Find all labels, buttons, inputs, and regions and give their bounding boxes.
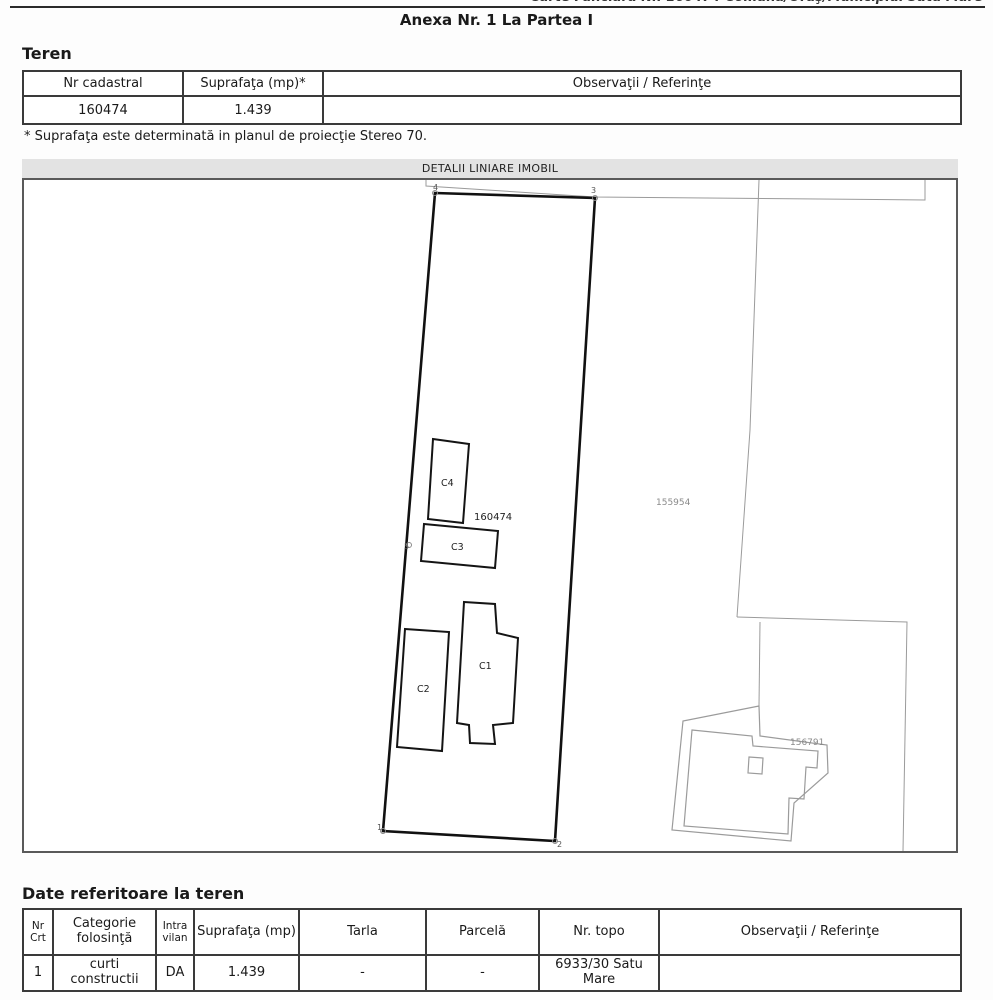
col-header-suprafata: Suprafaţa (mp)* xyxy=(183,71,323,96)
map-title: DETALII LINIARE IMOBIL xyxy=(422,162,558,175)
corner-label-2: 2 xyxy=(557,840,562,849)
corner-label-3: 3 xyxy=(591,186,596,195)
col-header-parcela: Parcelă xyxy=(426,909,539,955)
cell-intravilan: DA xyxy=(156,955,194,991)
cadastral-document-page: Carte Funciară Nr. 160474 Comuna/Oraş/Mu… xyxy=(0,0,993,1000)
neighbor-boundary-inner-vertical xyxy=(759,622,760,706)
neighbor-boundary-step xyxy=(737,617,907,851)
corner-label-5: 5 xyxy=(404,542,409,551)
cell-tarla: - xyxy=(299,955,426,991)
parcel-160474-label: 160474 xyxy=(474,512,512,523)
date-teren-header-row: Nr Crt Categorie folosinţă Intra vilan S… xyxy=(23,909,961,955)
corner-label-4: 4 xyxy=(433,183,438,192)
cell-nr-crt: 1 xyxy=(23,955,53,991)
annex-title: Anexa Nr. 1 La Partea I xyxy=(0,11,993,29)
cell-nr-topo: 6933/30 Satu Mare xyxy=(539,955,659,991)
col-header-tarla: Tarla xyxy=(299,909,426,955)
building-c1 xyxy=(457,602,518,744)
carte-funciara-header: Carte Funciară Nr. 160474 Comuna/Oraş/Mu… xyxy=(530,0,983,5)
building-c4-label: C4 xyxy=(441,478,454,489)
map-title-band: DETALII LINIARE IMOBIL xyxy=(22,159,958,178)
stereo70-footnote: * Suprafaţa este determinată in planul d… xyxy=(24,129,427,144)
teren-table: Nr cadastral Suprafaţa (mp)* Observaţii … xyxy=(22,70,962,125)
col-header-nr-cadastral: Nr cadastral xyxy=(23,71,183,96)
col-header-nr-crt: Nr Crt xyxy=(23,909,53,955)
cadastral-map-drawing: C4 C3 C2 C1 160474 155954 156791 4 3 5 1… xyxy=(24,180,956,851)
parcel-155954-label: 155954 xyxy=(656,498,691,508)
cell-categorie: curti constructii xyxy=(53,955,156,991)
building-c2-label: C2 xyxy=(417,684,430,695)
neighbor-boundary-right-vertical xyxy=(737,180,759,617)
neighbor-boundary-top xyxy=(426,180,925,200)
date-teren-data-row: 1 curti constructii DA 1.439 - - 6933/30… xyxy=(23,955,961,991)
cadastral-map: C4 C3 C2 C1 160474 155954 156791 4 3 5 1… xyxy=(22,178,958,853)
col-header-observatii-referinte: Observaţii / Referinţe xyxy=(659,909,961,955)
teren-heading: Teren xyxy=(22,44,72,63)
col-header-nr-topo: Nr. topo xyxy=(539,909,659,955)
col-header-categorie: Categorie folosinţă xyxy=(53,909,156,955)
cell-suprafata-mp: 1.439 xyxy=(194,955,299,991)
cell-observatii-referinte xyxy=(659,955,961,991)
date-teren-table: Nr Crt Categorie folosinţă Intra vilan S… xyxy=(22,908,962,992)
header-divider-rule xyxy=(10,6,985,8)
col-header-intravilan: Intra vilan xyxy=(156,909,194,955)
cell-suprafata: 1.439 xyxy=(183,96,323,124)
teren-table-data-row: 160474 1.439 xyxy=(23,96,961,124)
teren-table-header-row: Nr cadastral Suprafaţa (mp)* Observaţii … xyxy=(23,71,961,96)
date-teren-heading: Date referitoare la teren xyxy=(22,884,244,903)
cell-parcela: - xyxy=(426,955,539,991)
parcel-156791-annex xyxy=(748,757,763,774)
col-header-observatii: Observaţii / Referinţe xyxy=(323,71,961,96)
parcel-156791-label: 156791 xyxy=(790,738,824,748)
corner-label-1: 1 xyxy=(377,823,382,832)
building-c1-label: C1 xyxy=(479,661,492,672)
building-c3-label: C3 xyxy=(451,542,464,553)
cell-observatii xyxy=(323,96,961,124)
cell-nr-cadastral: 160474 xyxy=(23,96,183,124)
col-header-suprafata-mp: Suprafaţa (mp) xyxy=(194,909,299,955)
